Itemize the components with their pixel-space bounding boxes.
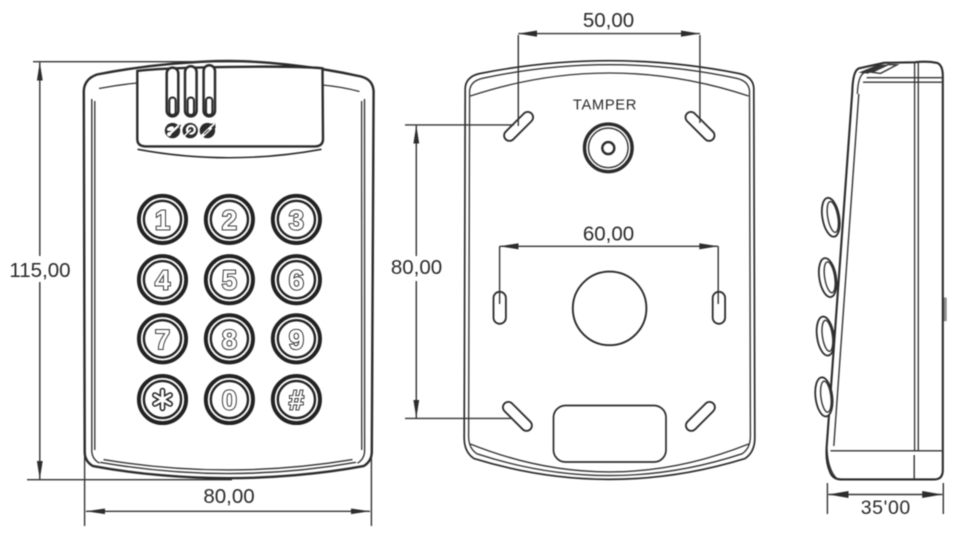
svg-text:4: 4	[155, 265, 171, 296]
svg-text:8: 8	[222, 324, 237, 355]
svg-text:9: 9	[289, 324, 304, 355]
svg-text:TAMPER: TAMPER	[573, 98, 637, 114]
svg-text:2: 2	[222, 204, 237, 235]
svg-text:50,00: 50,00	[583, 9, 634, 32]
svg-text:115,00: 115,00	[9, 259, 70, 282]
svg-text:0: 0	[222, 385, 237, 416]
svg-text:3: 3	[289, 204, 304, 235]
svg-text:1: 1	[155, 204, 170, 235]
svg-text:80,00: 80,00	[203, 485, 254, 508]
svg-text:#: #	[289, 385, 304, 416]
svg-text:35'00: 35'00	[861, 497, 911, 519]
svg-text:7: 7	[155, 324, 170, 355]
svg-text:60,00: 60,00	[583, 223, 634, 246]
svg-text:5: 5	[222, 265, 237, 296]
svg-text:6: 6	[289, 265, 304, 296]
svg-text:80,00: 80,00	[391, 256, 442, 279]
